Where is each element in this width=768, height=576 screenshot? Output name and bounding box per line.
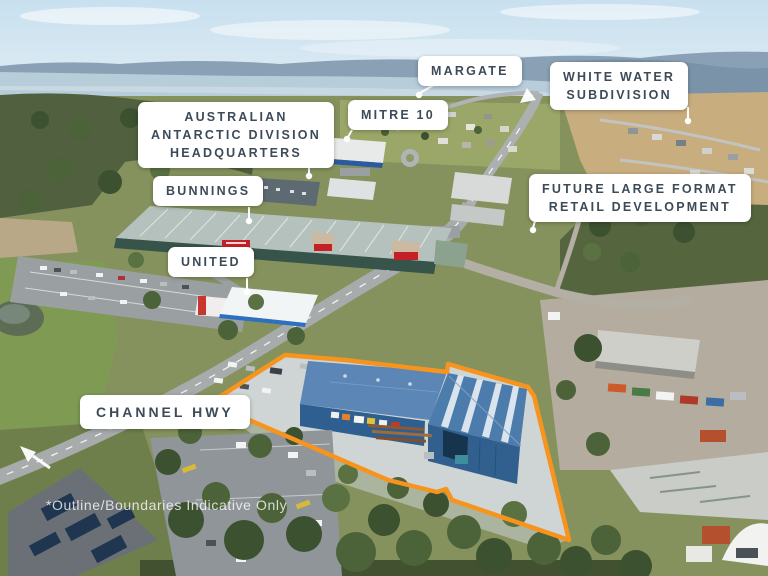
label-white-water-subdivision: WHITE WATER SUBDIVISION [550, 62, 688, 110]
label-channel-hwy: CHANNEL HWY [80, 395, 250, 429]
label-united: UNITED [168, 247, 254, 277]
label-future-retail: FUTURE LARGE FORMAT RETAIL DEVELOPMENT [529, 174, 751, 222]
aerial-photo: MARGATE WHITE WATER SUBDIVISION MITRE 10… [0, 0, 768, 576]
disclaimer-text: *Outline/Boundaries Indicative Only [46, 497, 287, 513]
label-margate: MARGATE [418, 56, 522, 86]
label-bunnings: BUNNINGS [153, 176, 263, 206]
label-mitre-10: MITRE 10 [348, 100, 448, 130]
label-antarctic-division: AUSTRALIAN ANTARCTIC DIVISION HEADQUARTE… [138, 102, 334, 168]
